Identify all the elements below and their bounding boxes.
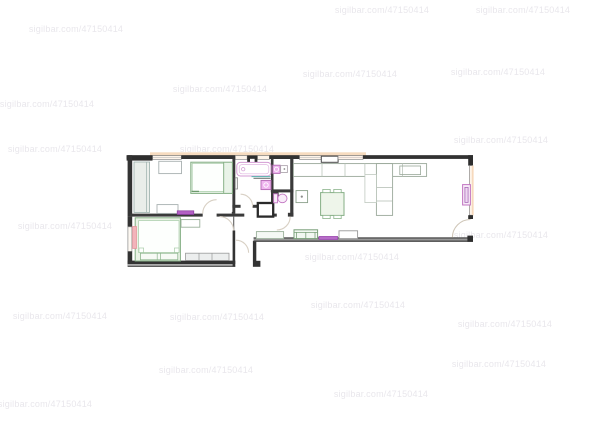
svg-text:sigilbar.com/47150414: sigilbar.com/47150414 — [8, 144, 102, 154]
svg-text:sigilbar.com/47150414: sigilbar.com/47150414 — [334, 389, 428, 399]
svg-text:sigilbar.com/47150414: sigilbar.com/47150414 — [173, 84, 267, 94]
svg-text:sigilbar.com/47150414: sigilbar.com/47150414 — [305, 252, 399, 262]
svg-text:sigilbar.com/47150414: sigilbar.com/47150414 — [311, 300, 405, 310]
svg-text:sigilbar.com/47150414: sigilbar.com/47150414 — [0, 399, 92, 409]
svg-text:sigilbar.com/47150414: sigilbar.com/47150414 — [0, 99, 94, 109]
svg-text:sigilbar.com/47150414: sigilbar.com/47150414 — [451, 67, 545, 77]
svg-text:sigilbar.com/47150414: sigilbar.com/47150414 — [13, 311, 107, 321]
svg-text:sigilbar.com/47150414: sigilbar.com/47150414 — [335, 5, 429, 15]
svg-text:sigilbar.com/47150414: sigilbar.com/47150414 — [303, 69, 397, 79]
svg-text:sigilbar.com/47150414: sigilbar.com/47150414 — [452, 359, 546, 369]
svg-text:sigilbar.com/47150414: sigilbar.com/47150414 — [458, 319, 552, 329]
svg-text:sigilbar.com/47150414: sigilbar.com/47150414 — [18, 221, 112, 231]
svg-text:sigilbar.com/47150414: sigilbar.com/47150414 — [170, 312, 264, 322]
svg-text:sigilbar.com/47150414: sigilbar.com/47150414 — [476, 5, 570, 15]
svg-text:sigilbar.com/47150414: sigilbar.com/47150414 — [159, 365, 253, 375]
svg-text:sigilbar.com/47150414: sigilbar.com/47150414 — [454, 135, 548, 145]
svg-text:sigilbar.com/47150414: sigilbar.com/47150414 — [29, 24, 123, 34]
